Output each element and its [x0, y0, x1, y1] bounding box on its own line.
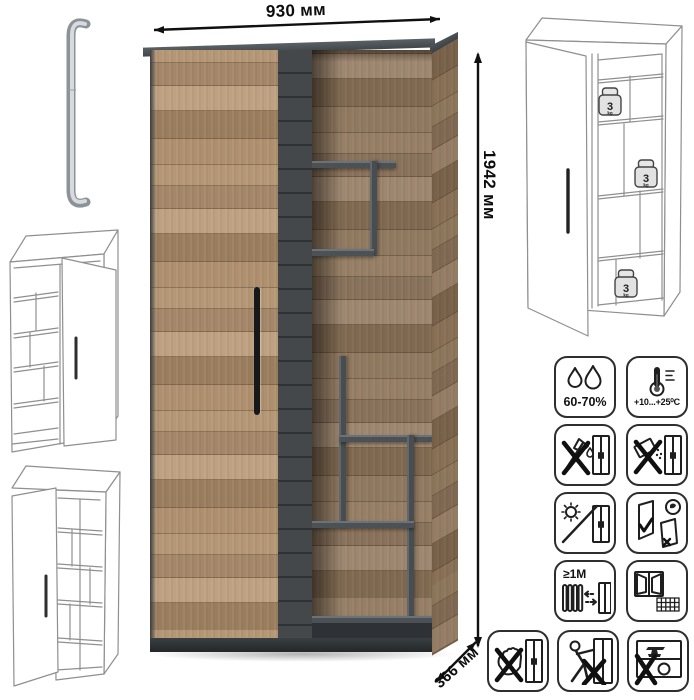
height-dimension-arrow [462, 42, 494, 658]
door-handle [254, 287, 260, 415]
temperature-icon [635, 367, 679, 397]
height-dimension-label: 1942 мм [479, 150, 499, 220]
width-dimension-label: 930 мм [248, 0, 345, 23]
care-radiator-distance: ≥1М [554, 560, 616, 622]
center-partition [278, 50, 313, 638]
interior-shadow [312, 50, 342, 638]
door-edge-shade [150, 50, 156, 638]
no-pushing-icon [562, 637, 614, 685]
care-temperature: +10...+25⁰C [626, 356, 688, 418]
temperature-label: +10...+25⁰C [634, 398, 680, 407]
svg-text:kg: kg [643, 183, 649, 188]
care-no-heavy-items [627, 630, 689, 692]
open-shelving-section [312, 50, 432, 638]
care-no-sunlight [554, 492, 616, 554]
cabinet-door [150, 50, 278, 638]
shelf-divider [339, 356, 346, 528]
no-sharp-tools-icon [559, 433, 611, 477]
load-badge-3kg: 3 kg [599, 88, 621, 116]
shelf [340, 435, 432, 442]
humidity-label: 60-70% [563, 396, 606, 409]
wireframe-front-right-view [0, 458, 132, 698]
door-adjustment-icon [631, 497, 683, 549]
no-heavy-load-icon [631, 636, 685, 686]
care-door-adjustment [626, 492, 688, 554]
interior-top-shadow [312, 50, 432, 62]
cabinet-front [150, 50, 432, 652]
shelf [312, 161, 396, 168]
no-abrasive-powder-icon [631, 433, 683, 477]
radiator-distance-icon [559, 581, 611, 615]
care-ventilation [626, 560, 688, 622]
wireframe-front-left-view [0, 226, 132, 464]
care-no-pushing [557, 630, 619, 692]
window-ventilation-icon [631, 568, 683, 614]
wireframe-open-interior-view: 3 kg 3 kg 3 kg [502, 10, 694, 344]
distance-label: ≥1М [563, 567, 586, 581]
shelf-divider [407, 435, 414, 623]
plinth [312, 623, 432, 638]
bottom-shelf [312, 616, 432, 623]
care-no-abrasives [626, 424, 688, 486]
shelf [312, 249, 374, 256]
shelf [312, 521, 414, 528]
load-badge-3kg: 3 kg [615, 270, 637, 298]
cabinet-base [150, 638, 432, 652]
svg-text:kg: kg [623, 293, 629, 298]
load-badge-3kg: 3 kg [635, 160, 657, 188]
care-no-hand-pressure [487, 630, 549, 692]
care-humidity: 60-70% [554, 356, 616, 418]
shelf-divider [370, 161, 377, 256]
cabinet-side-panel [432, 38, 458, 655]
product-sheet: 930 мм 1942 мм 366 мм [0, 0, 694, 700]
care-no-sharp-tools [554, 424, 616, 486]
handle-detail-drawing [28, 8, 112, 220]
no-direct-sunlight-icon [559, 501, 611, 545]
no-hand-pressure-icon [492, 638, 544, 684]
humidity-icon [563, 365, 607, 395]
svg-text:kg: kg [607, 111, 613, 116]
